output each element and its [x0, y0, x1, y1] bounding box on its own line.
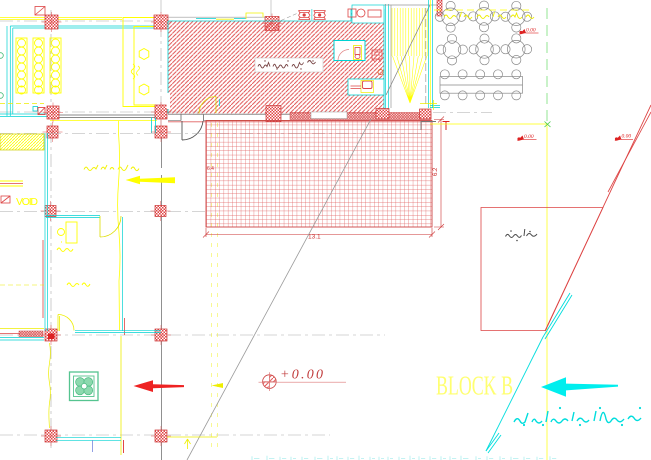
svg-text:6.2: 6.2	[433, 167, 439, 176]
svg-text:0.00: 0.00	[622, 134, 632, 140]
svg-text:+0.00: +0.00	[280, 368, 323, 383]
svg-text:VOID: VOID	[16, 196, 38, 208]
svg-text:BLOCK B: BLOCK B	[436, 371, 513, 401]
svg-text:0.00: 0.00	[524, 134, 534, 140]
svg-text:13.1: 13.1	[308, 234, 321, 241]
svg-text:0.00: 0.00	[526, 28, 536, 34]
svg-text:6.4: 6.4	[207, 166, 214, 172]
